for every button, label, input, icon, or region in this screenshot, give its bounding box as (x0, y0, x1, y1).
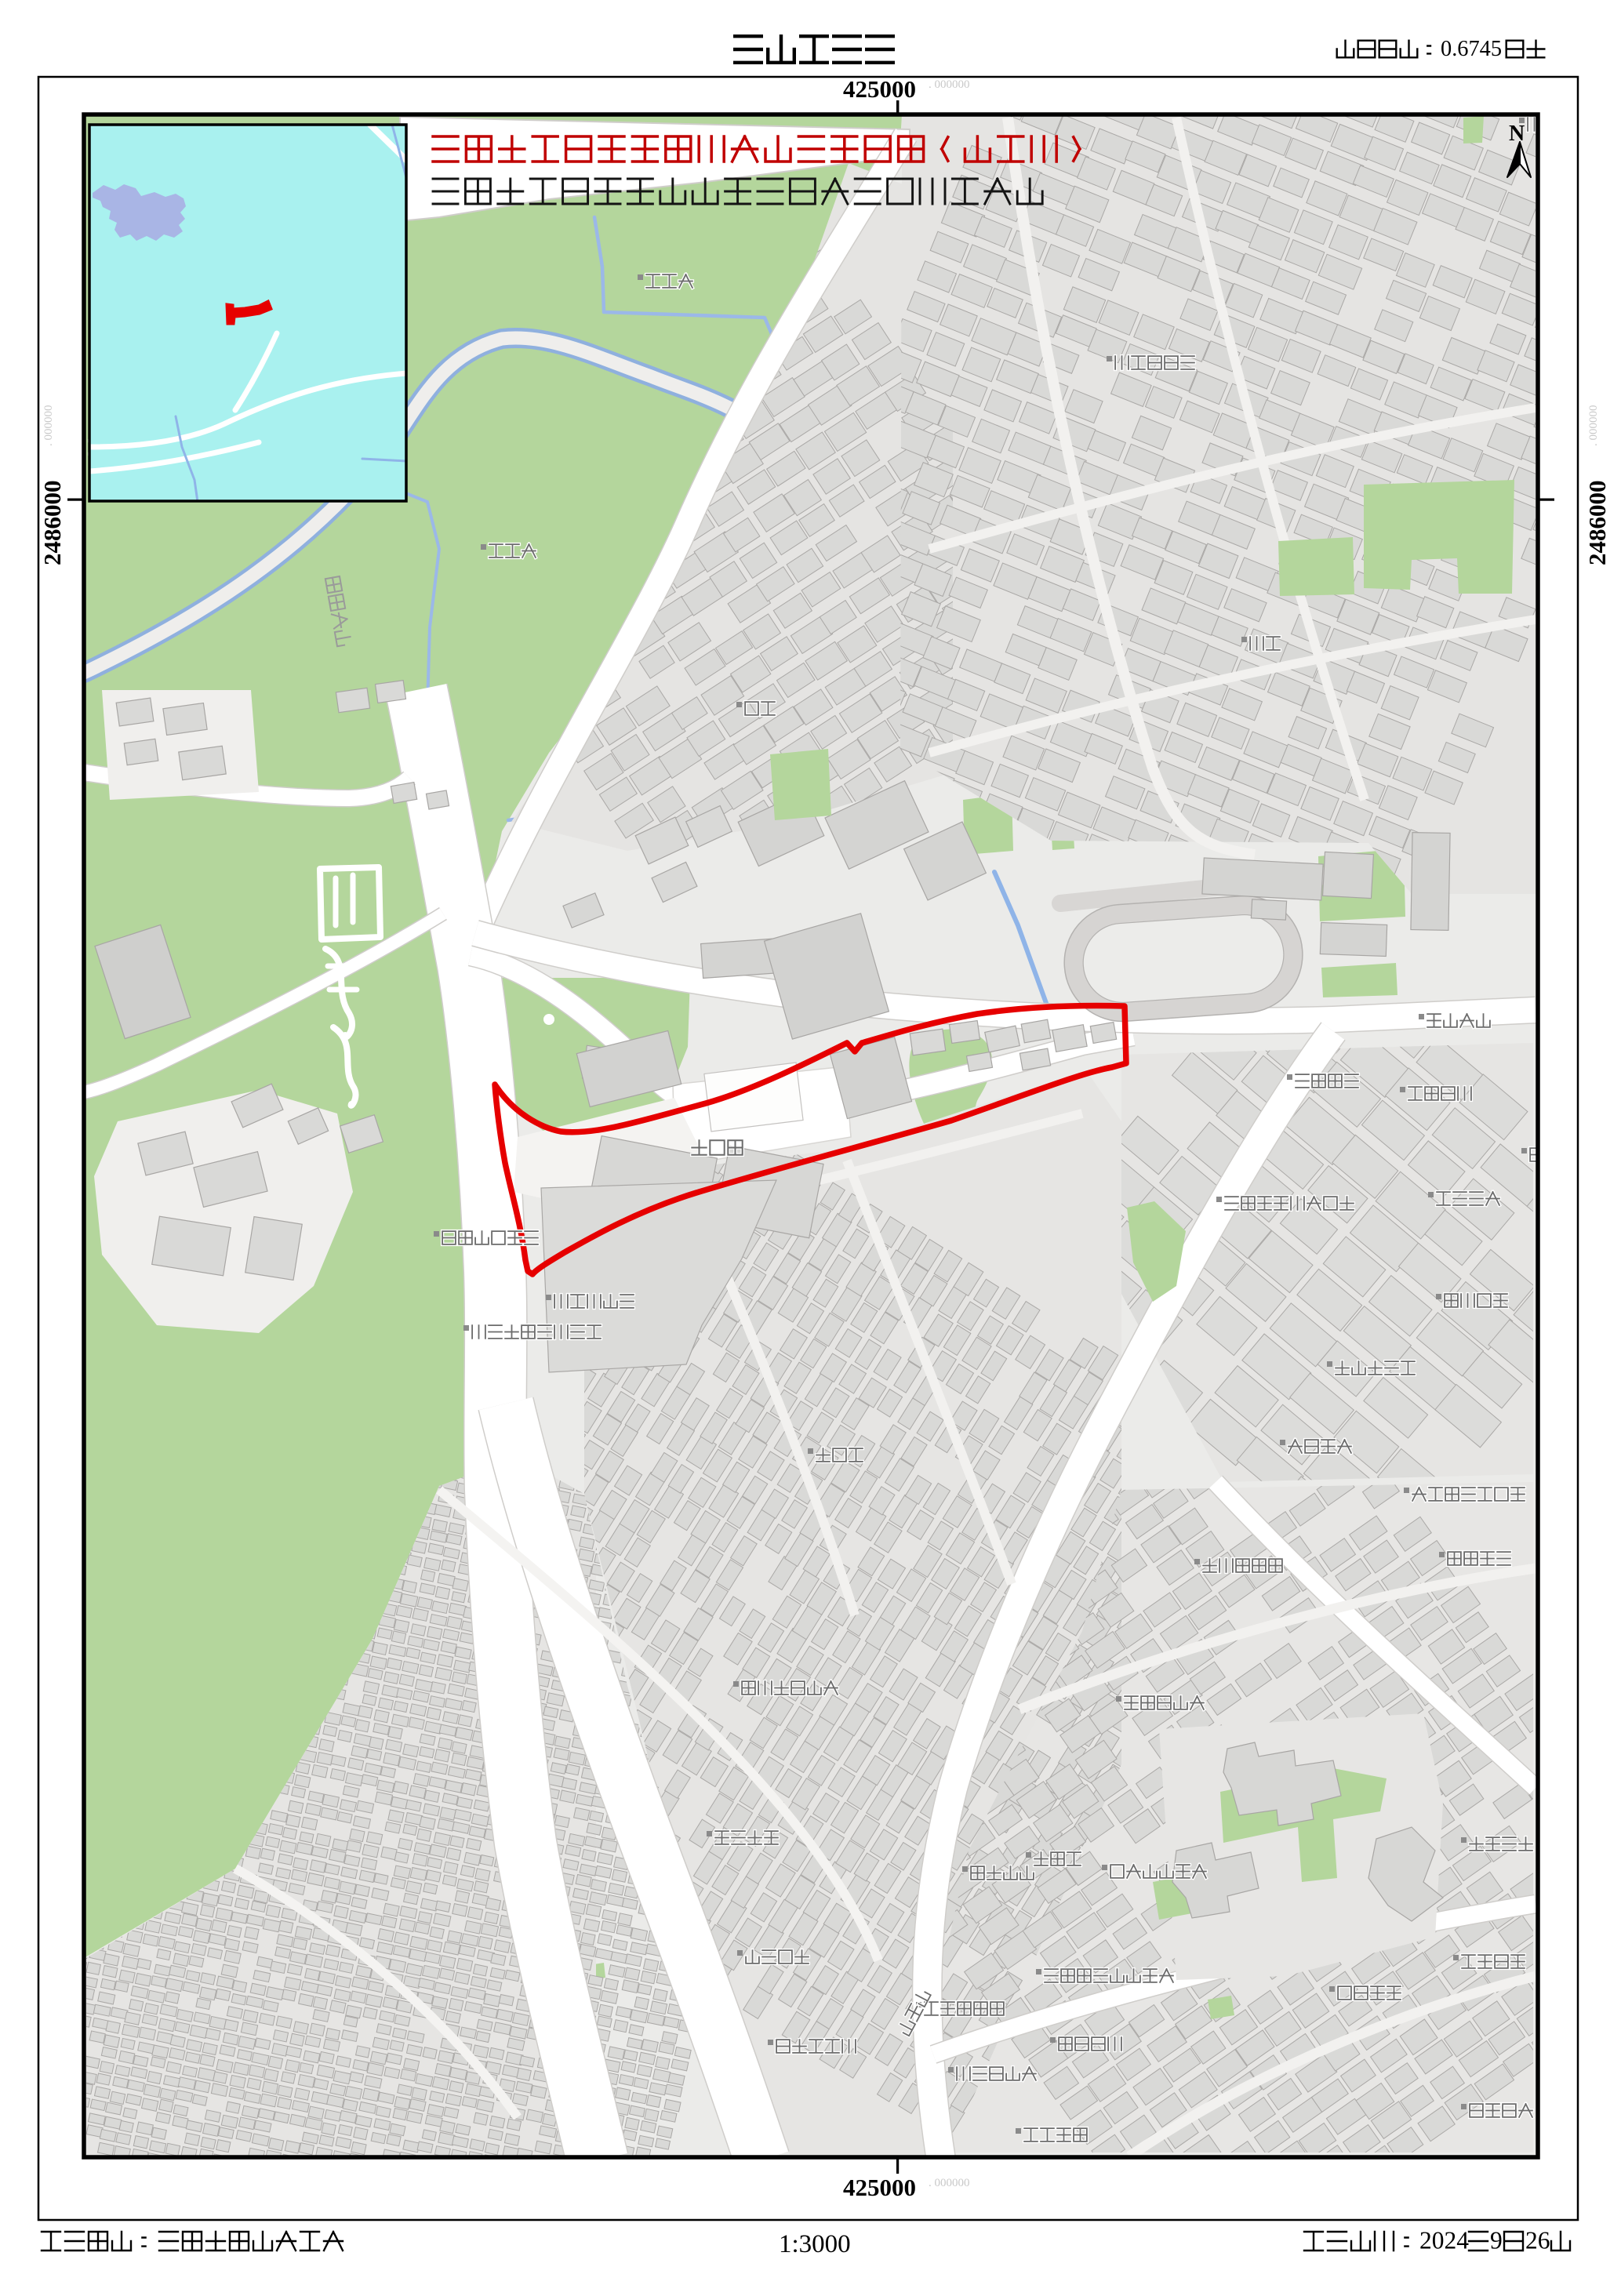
svg-text:2486000: 2486000 (1583, 481, 1611, 566)
svg-text:2486000: 2486000 (38, 481, 66, 566)
svg-text:1:3000: 1:3000 (779, 2230, 851, 2258)
svg-text:. 000000: . 000000 (929, 2177, 970, 2189)
svg-text:26: 26 (1525, 2227, 1550, 2254)
svg-text:425000: 425000 (843, 75, 916, 103)
svg-text:. 000000: . 000000 (42, 405, 55, 447)
svg-text:0.6745: 0.6745 (1441, 37, 1502, 61)
svg-text:. 000000: . 000000 (1587, 405, 1600, 447)
svg-text:N: N (1509, 122, 1525, 146)
svg-text:. 000000: . 000000 (929, 78, 970, 91)
svg-text:425000: 425000 (843, 2174, 916, 2201)
svg-text:9: 9 (1490, 2227, 1503, 2254)
svg-text:2024: 2024 (1419, 2227, 1469, 2254)
